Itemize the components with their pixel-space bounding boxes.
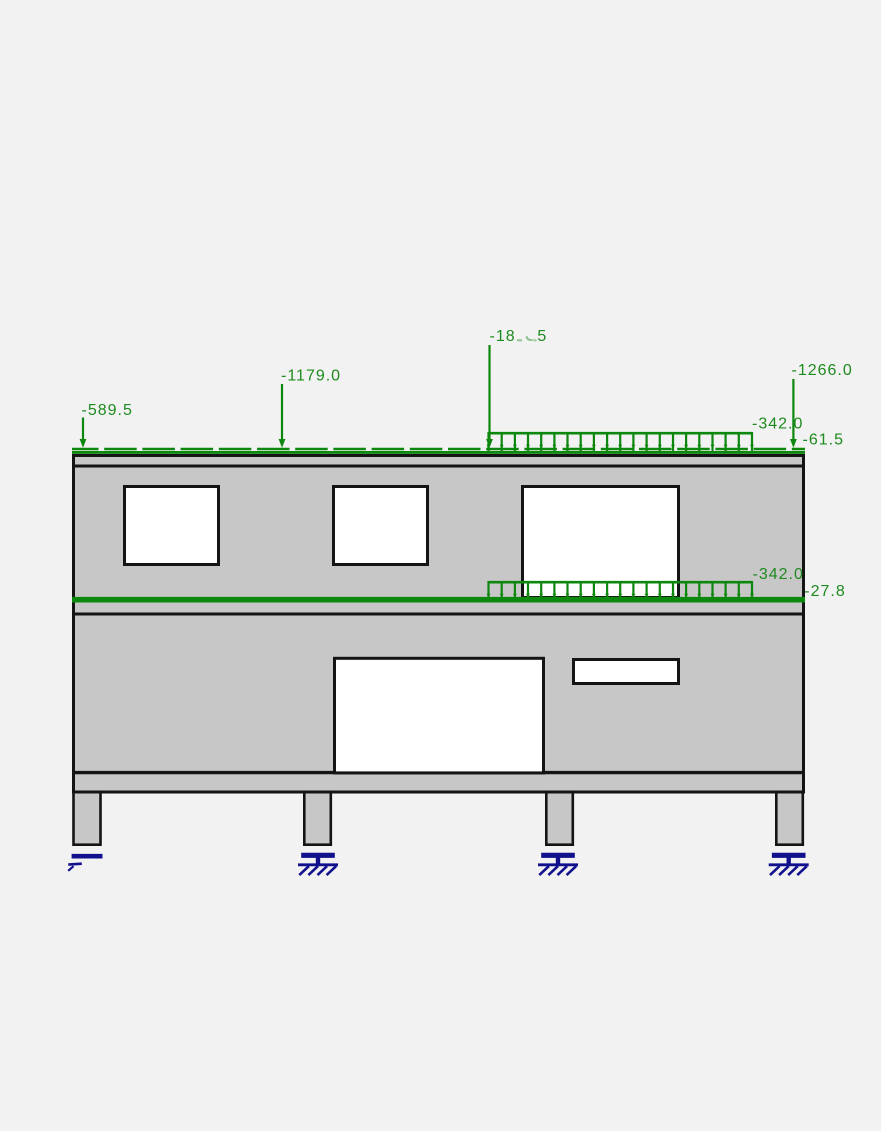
svg-text:-1179.0: -1179.0 [281,367,341,384]
svg-text:-18: -18 [490,328,516,345]
svg-text:-1266.0: -1266.0 [792,362,853,379]
svg-text:-589.5: -589.5 [82,402,133,419]
svg-text:-61.5: -61.5 [803,432,844,449]
svg-text:5: 5 [537,328,547,345]
svg-text:-27.8: -27.8 [804,583,845,600]
svg-text:-342.0: -342.0 [753,566,804,583]
svg-text:-342.0: -342.0 [752,416,803,433]
